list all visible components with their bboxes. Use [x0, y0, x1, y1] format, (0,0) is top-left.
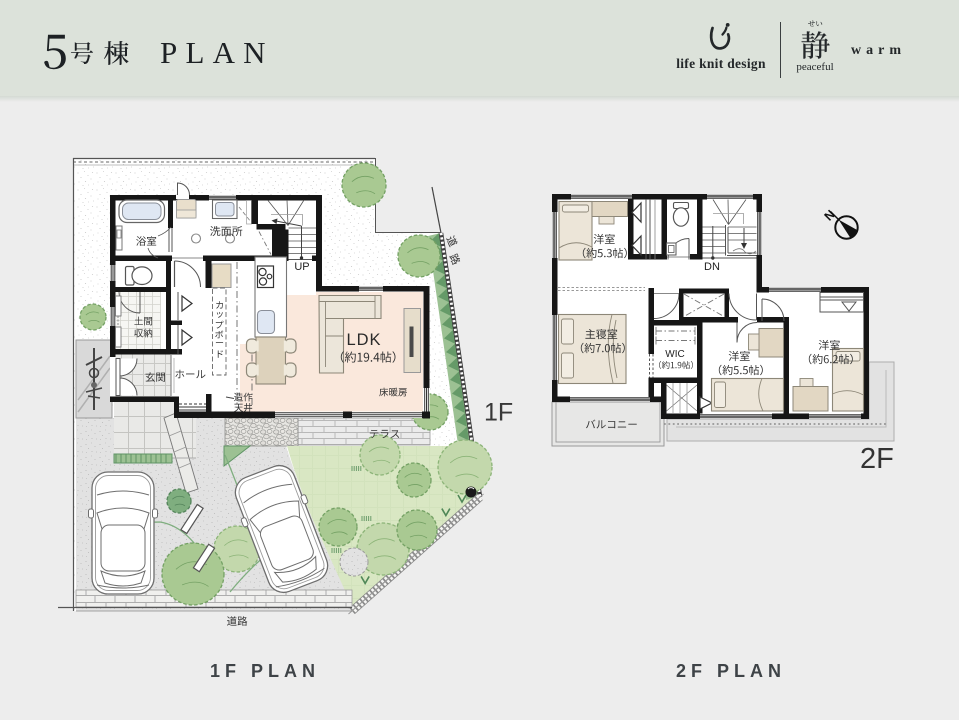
svg-text:UP: UP — [294, 261, 309, 273]
svg-text:WIC: WIC — [665, 349, 684, 360]
svg-text:DN: DN — [704, 261, 720, 273]
svg-text:LDK: LDK — [346, 331, 381, 349]
svg-text:N: N — [822, 207, 838, 223]
svg-text:1F: 1F — [484, 399, 513, 427]
svg-text:2F: 2F — [860, 443, 894, 475]
